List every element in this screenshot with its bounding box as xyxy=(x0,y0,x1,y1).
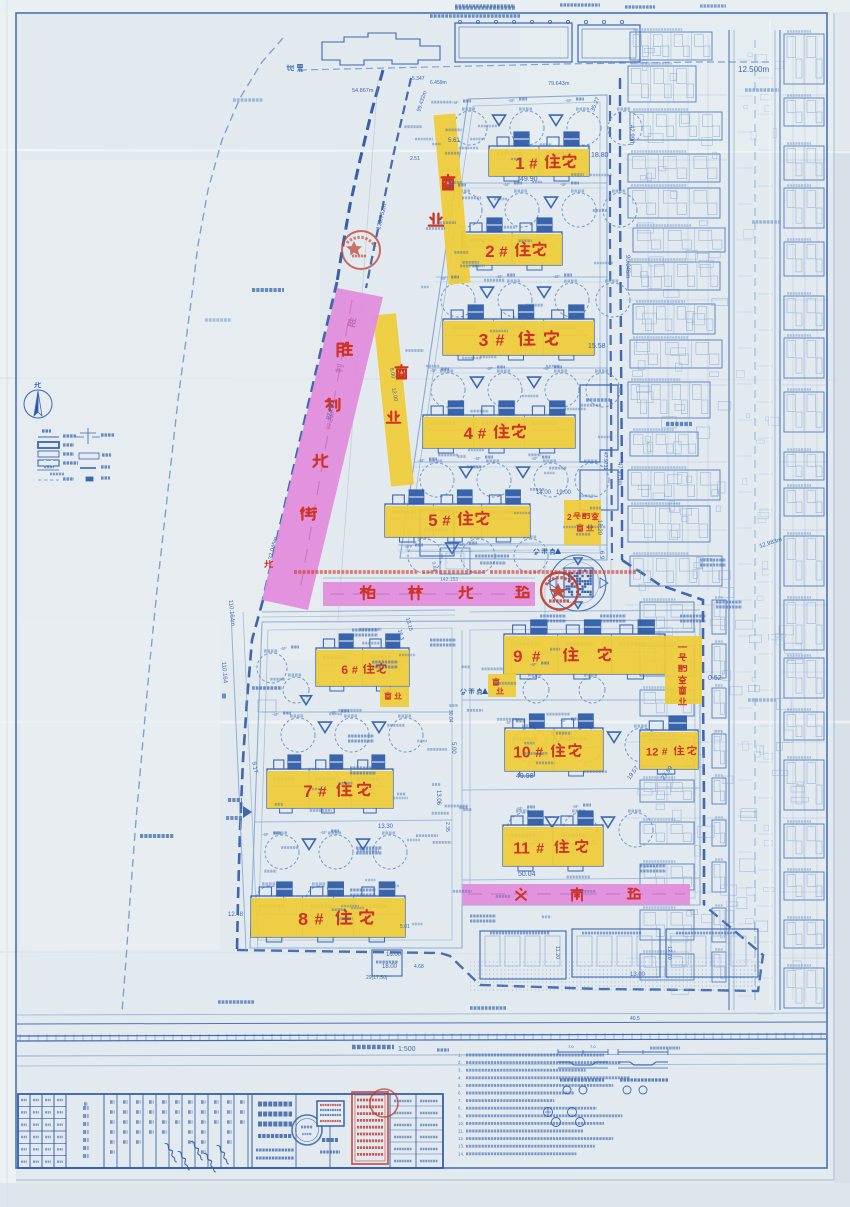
svg-text:9: 9 xyxy=(513,647,522,666)
svg-text:49.90: 49.90 xyxy=(520,176,538,183)
svg-text:#: # xyxy=(352,665,358,677)
svg-text:2.35: 2.35 xyxy=(444,822,450,832)
svg-text:79.643m: 79.643m xyxy=(548,81,570,87)
svg-text:12.48: 12.48 xyxy=(228,912,244,918)
svg-text:-6F: -6F xyxy=(496,274,503,279)
svg-text:-6F: -6F xyxy=(508,98,515,103)
svg-text:#: # xyxy=(535,744,543,760)
svg-text:4.68: 4.68 xyxy=(414,964,424,970)
svg-text:7.0: 7.0 xyxy=(568,1044,574,1049)
svg-text:15.58: 15.58 xyxy=(588,343,606,350)
svg-text:12.: 12. xyxy=(458,1136,464,1141)
svg-text:3.: 3. xyxy=(458,1068,462,1073)
svg-text:-6F: -6F xyxy=(572,804,579,809)
svg-text:2: 2 xyxy=(567,512,572,522)
svg-text:-6F: -6F xyxy=(531,456,538,461)
svg-text:9.: 9. xyxy=(458,1113,462,1118)
svg-text:-6F: -6F xyxy=(447,184,454,189)
svg-text:47.9731: 47.9731 xyxy=(602,452,608,470)
svg-text:-6F: -6F xyxy=(272,712,279,717)
svg-text:50.04: 50.04 xyxy=(518,871,536,878)
svg-text:-6F: -6F xyxy=(505,720,512,725)
svg-text:-6F: -6F xyxy=(516,806,523,811)
svg-text:16.00: 16.00 xyxy=(386,952,402,958)
svg-text:-6F: -6F xyxy=(503,182,510,187)
svg-text:-6F: -6F xyxy=(320,830,327,835)
svg-text:6: 6 xyxy=(341,663,348,677)
svg-text:2: 2 xyxy=(485,242,494,261)
svg-text:-6F: -6F xyxy=(330,710,337,715)
svg-text:#: # xyxy=(662,747,668,758)
svg-text:12: 12 xyxy=(646,747,658,759)
svg-text:2.: 2. xyxy=(458,1060,462,1065)
svg-text:1.: 1. xyxy=(458,1053,462,1058)
svg-text:14.00: 14.00 xyxy=(536,490,552,496)
svg-text:#: # xyxy=(536,840,544,856)
svg-text:4.: 4. xyxy=(458,1075,462,1080)
svg-text:7.0: 7.0 xyxy=(590,1044,596,1049)
svg-text:13.30: 13.30 xyxy=(378,824,394,830)
svg-text:-6F: -6F xyxy=(543,366,550,371)
svg-text:10.: 10. xyxy=(458,1121,464,1126)
svg-text:-6F: -6F xyxy=(553,274,560,279)
svg-text:#: # xyxy=(442,512,451,529)
svg-text:40.5: 40.5 xyxy=(630,1016,640,1022)
svg-text:18.20: 18.20 xyxy=(596,520,602,536)
svg-text:19.00: 19.00 xyxy=(556,490,572,496)
svg-text:-6F: -6F xyxy=(418,458,425,463)
svg-text:5.61: 5.61 xyxy=(448,138,460,144)
svg-text:5.00: 5.00 xyxy=(450,742,456,754)
svg-text:5: 5 xyxy=(428,511,437,530)
svg-text:11.20: 11.20 xyxy=(554,946,560,959)
svg-text:#: # xyxy=(315,912,324,929)
svg-text:5.: 5. xyxy=(458,1083,462,1088)
svg-text:18.80: 18.80 xyxy=(591,152,609,159)
svg-text:90.046m: 90.046m xyxy=(624,255,630,278)
svg-text:6.9: 6.9 xyxy=(598,551,604,560)
svg-text:5.347: 5.347 xyxy=(412,76,425,82)
svg-text:-6F: -6F xyxy=(560,718,567,723)
svg-text:18.00: 18.00 xyxy=(382,964,398,970)
svg-text:#: # xyxy=(478,425,487,442)
svg-text:#: # xyxy=(496,333,505,350)
svg-text:-6F: -6F xyxy=(440,276,447,281)
svg-text:54.867m: 54.867m xyxy=(352,88,374,94)
svg-text:6.459m: 6.459m xyxy=(430,80,447,86)
svg-text:47.973m: 47.973m xyxy=(616,462,622,485)
svg-text:13.06: 13.06 xyxy=(435,790,441,806)
svg-text:7: 7 xyxy=(303,782,312,801)
svg-text:1:500: 1:500 xyxy=(398,1046,416,1053)
svg-text:#: # xyxy=(499,243,508,260)
svg-text:5.01: 5.01 xyxy=(400,924,410,930)
svg-text:14.: 14. xyxy=(458,1151,464,1156)
svg-text:4: 4 xyxy=(464,424,474,443)
svg-text:-6F: -6F xyxy=(404,544,411,549)
svg-text:8.: 8. xyxy=(458,1106,462,1111)
svg-text:3: 3 xyxy=(479,330,489,350)
svg-text:#: # xyxy=(318,783,327,800)
svg-text:#: # xyxy=(529,155,538,172)
svg-text:-6F: -6F xyxy=(474,456,481,461)
svg-text:30.04: 30.04 xyxy=(447,710,453,723)
svg-text:-6F: -6F xyxy=(530,662,537,667)
svg-text:-6F: -6F xyxy=(560,182,567,187)
svg-text:0.52: 0.52 xyxy=(708,675,722,682)
svg-text:8: 8 xyxy=(298,909,308,929)
svg-text:42.99m: 42.99m xyxy=(628,125,634,145)
svg-text:11: 11 xyxy=(513,840,530,857)
svg-text:11.: 11. xyxy=(458,1129,464,1134)
svg-text:49.98: 49.98 xyxy=(516,773,534,780)
svg-text:-6F: -6F xyxy=(565,98,572,103)
svg-text:12.500m: 12.500m xyxy=(738,65,769,74)
svg-text:-6F: -6F xyxy=(430,368,437,373)
svg-text:1: 1 xyxy=(515,154,524,173)
svg-text:6.: 6. xyxy=(458,1091,462,1096)
svg-text:-6F: -6F xyxy=(486,366,493,371)
svg-text:-6F: -6F xyxy=(280,646,287,651)
svg-text:-6F: -6F xyxy=(458,542,465,547)
svg-text:13.: 13. xyxy=(458,1144,464,1149)
svg-text:-6F: -6F xyxy=(452,100,459,105)
svg-text:2.51: 2.51 xyxy=(410,156,420,162)
svg-text:7.: 7. xyxy=(458,1098,462,1103)
svg-text:-6F: -6F xyxy=(262,832,269,837)
